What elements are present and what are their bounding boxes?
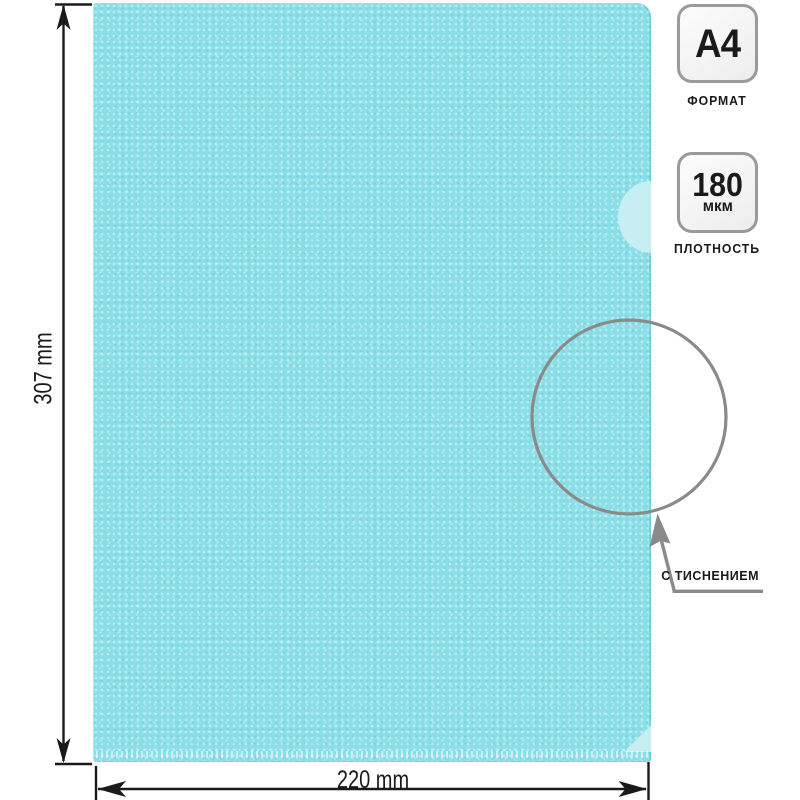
product-image: 307 mm 220 mm A4 ФОРМАТ 180 мкм ПЛОТНОСТ… [0,0,800,800]
density-badge-unit: мкм [702,199,732,215]
embossing-callout-label: С ТИСНЕНИЕМ [661,569,759,583]
density-badge-label: ПЛОТНОСТЬ [651,241,783,256]
thumb-notch [618,181,651,253]
format-badge-value: A4 [695,25,740,63]
density-badge: 180 мкм [677,152,758,233]
corner-weld [624,725,651,752]
height-dimension-label: 307 mm [30,321,59,417]
width-dimension-label: 220 mm [325,766,421,795]
weld-seam [96,751,648,758]
format-badge: A4 [677,4,758,83]
format-badge-label: ФОРМАТ [651,93,783,108]
folder-sheet [93,3,651,762]
height-dimension-line [55,5,92,765]
density-badge-value: 180 [692,171,743,199]
